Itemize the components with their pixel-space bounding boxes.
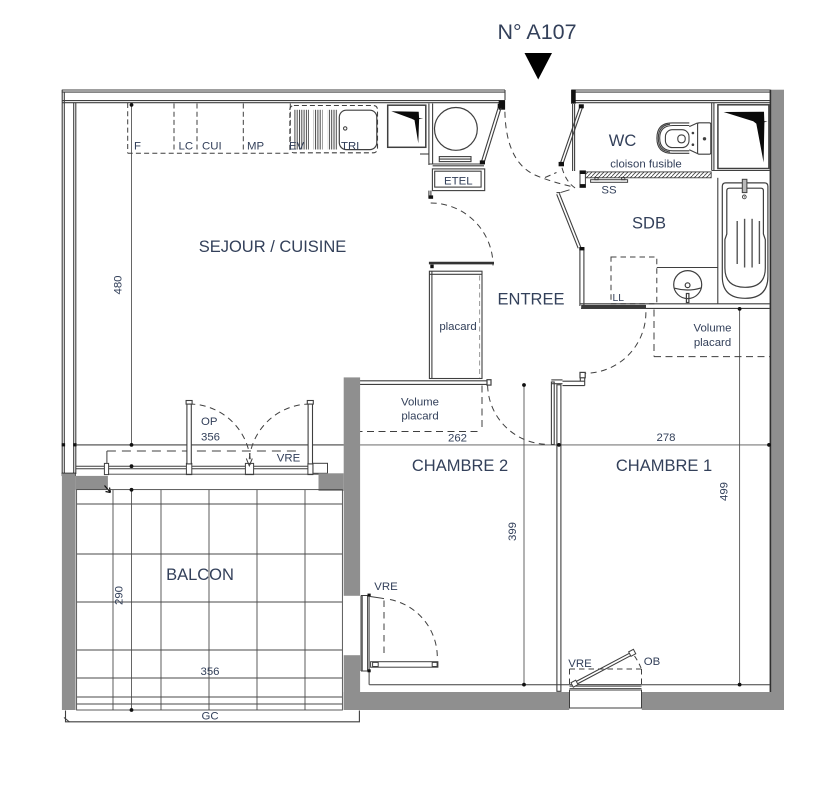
- svg-text:WC: WC: [609, 132, 637, 150]
- svg-text:TRI: TRI: [341, 141, 359, 153]
- svg-text:OB: OB: [644, 656, 660, 668]
- svg-text:LL: LL: [613, 293, 625, 304]
- svg-text:SDB: SDB: [632, 215, 666, 233]
- svg-text:BALCON: BALCON: [166, 566, 234, 584]
- svg-text:placard: placard: [694, 337, 731, 349]
- svg-text:290: 290: [114, 586, 126, 605]
- svg-text:356: 356: [201, 432, 220, 444]
- svg-text:ENTREE: ENTREE: [498, 291, 565, 309]
- svg-text:VRE: VRE: [568, 658, 592, 670]
- svg-text:LC: LC: [179, 141, 194, 153]
- svg-text:EV: EV: [289, 141, 305, 153]
- svg-text:CUI: CUI: [202, 141, 222, 153]
- svg-text:399: 399: [507, 522, 519, 541]
- svg-text:Volume: Volume: [694, 323, 732, 335]
- svg-text:356: 356: [200, 666, 219, 678]
- svg-text:VRE: VRE: [374, 581, 398, 593]
- svg-text:262: 262: [448, 433, 467, 445]
- svg-text:ETEL: ETEL: [444, 176, 473, 188]
- svg-text:VRE: VRE: [277, 453, 301, 465]
- svg-text:placard: placard: [401, 411, 438, 423]
- svg-text:cloison fusible: cloison fusible: [610, 159, 682, 171]
- svg-text:SS: SS: [601, 185, 617, 197]
- svg-text:N° A107: N° A107: [497, 20, 576, 44]
- svg-text:278: 278: [656, 432, 675, 444]
- svg-text:F: F: [134, 141, 141, 153]
- svg-text:MP: MP: [247, 141, 264, 153]
- svg-text:CHAMBRE 1: CHAMBRE 1: [616, 457, 712, 475]
- svg-text:499: 499: [719, 482, 731, 501]
- svg-text:SEJOUR / CUISINE: SEJOUR / CUISINE: [199, 238, 347, 256]
- svg-text:CHAMBRE 2: CHAMBRE 2: [412, 457, 508, 475]
- svg-text:Volume: Volume: [401, 397, 439, 409]
- svg-text:placard: placard: [439, 321, 476, 333]
- svg-text:480: 480: [113, 275, 125, 294]
- svg-text:GC: GC: [201, 711, 218, 723]
- svg-text:OP: OP: [201, 416, 217, 428]
